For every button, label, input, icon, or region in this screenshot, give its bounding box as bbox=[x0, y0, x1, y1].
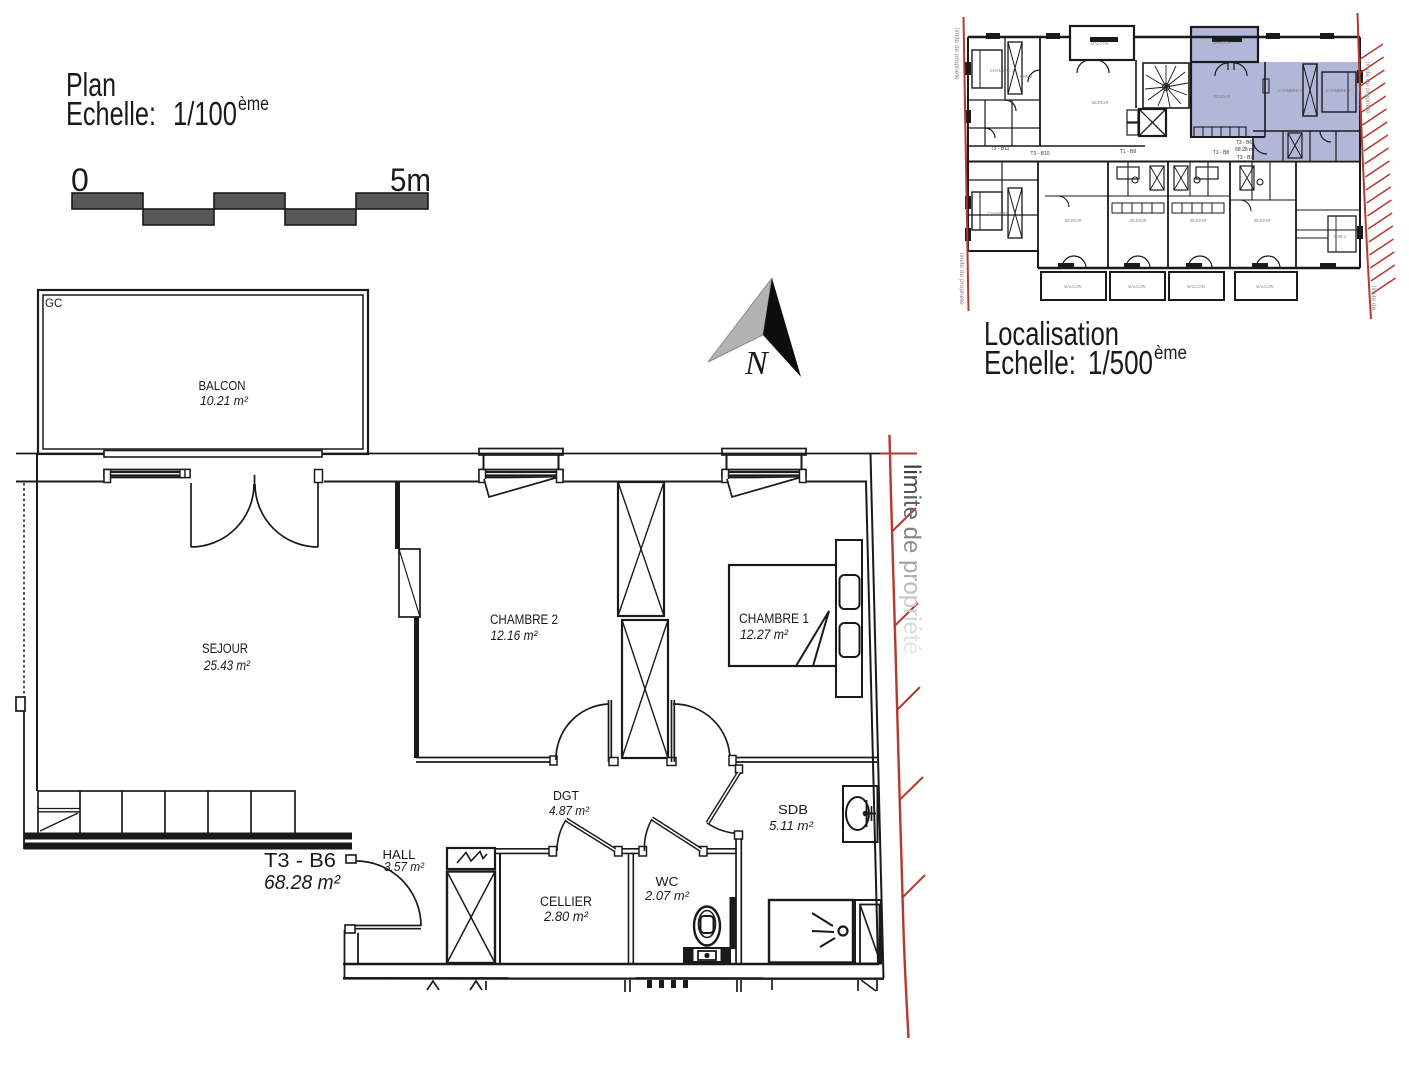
svg-text:ème: ème bbox=[238, 94, 269, 115]
svg-text:5m: 5m bbox=[390, 162, 431, 198]
svg-text:SEJOUR: SEJOUR bbox=[1130, 218, 1147, 223]
svg-text:limite de: limite de bbox=[1370, 286, 1377, 311]
svg-text:T3 - B11: T3 - B11 bbox=[991, 146, 1010, 152]
svg-text:68.28 m²: 68.28 m² bbox=[264, 872, 341, 894]
svg-text:CHB 1: CHB 1 bbox=[1334, 234, 1347, 239]
svg-text:12.16 m²: 12.16 m² bbox=[491, 628, 538, 643]
svg-text:3.57 m²: 3.57 m² bbox=[384, 859, 425, 874]
svg-text:limite de propriété: limite de propriété bbox=[898, 464, 925, 655]
svg-text:SEJOUR: SEJOUR bbox=[202, 641, 248, 656]
svg-text:T1 - B8: T1 - B8 bbox=[1213, 150, 1230, 156]
svg-text:T1 - B9: T1 - B9 bbox=[1120, 149, 1137, 155]
svg-text:CHAMBRE: CHAMBRE bbox=[988, 211, 1009, 216]
svg-text:BALCON: BALCON bbox=[199, 379, 246, 393]
svg-text:ème: ème bbox=[1154, 343, 1187, 364]
svg-text:N: N bbox=[744, 345, 770, 382]
svg-text:T3 - B6: T3 - B6 bbox=[264, 850, 336, 872]
svg-text:4.87 m²: 4.87 m² bbox=[549, 803, 590, 818]
svg-text:BALCON: BALCON bbox=[1091, 41, 1108, 46]
svg-text:CHAMBRE 1: CHAMBRE 1 bbox=[990, 68, 1015, 73]
svg-text:BALCON: BALCON bbox=[1064, 284, 1081, 289]
svg-text:WC: WC bbox=[656, 874, 679, 889]
svg-text:DGT: DGT bbox=[553, 788, 579, 803]
svg-text:SEJOUR: SEJOUR bbox=[1254, 218, 1271, 223]
svg-text:BALCON: BALCON bbox=[1187, 284, 1204, 289]
svg-text:CELLIER: CELLIER bbox=[540, 894, 592, 909]
svg-text:10.21 m²: 10.21 m² bbox=[200, 394, 249, 408]
svg-text:GC: GC bbox=[45, 298, 62, 310]
svg-text:limite de propriété: limite de propriété bbox=[953, 28, 960, 80]
svg-text:SEJOUR: SEJOUR bbox=[1092, 100, 1109, 105]
svg-text:2.07 m²: 2.07 m² bbox=[644, 888, 690, 903]
svg-text:limite de propriété: limite de propriété bbox=[1364, 62, 1371, 114]
svg-text:5.11 m²: 5.11 m² bbox=[769, 818, 814, 833]
svg-text:CHAMBRE 1: CHAMBRE 1 bbox=[1326, 88, 1351, 93]
svg-text:68.28 m²: 68.28 m² bbox=[1235, 147, 1255, 153]
svg-text:2.80 m²: 2.80 m² bbox=[543, 909, 588, 924]
svg-text:BALCON: BALCON bbox=[1128, 284, 1145, 289]
svg-text:SEJOUR: SEJOUR bbox=[1065, 218, 1082, 223]
svg-text:0: 0 bbox=[71, 162, 89, 198]
svg-text:CHAMBRE 2: CHAMBRE 2 bbox=[1278, 88, 1303, 93]
svg-text:1/500: 1/500 bbox=[1088, 344, 1153, 381]
svg-text:12.27 m²: 12.27 m² bbox=[740, 627, 788, 642]
svg-text:CHAMBRE 2: CHAMBRE 2 bbox=[490, 612, 558, 627]
svg-text:T3 - B6: T3 - B6 bbox=[1236, 140, 1253, 146]
svg-text:SEJOUR: SEJOUR bbox=[1214, 94, 1231, 99]
svg-text:Echelle:: Echelle: bbox=[984, 344, 1076, 381]
svg-text:25.43 m²: 25.43 m² bbox=[203, 658, 250, 673]
svg-text:T3 - B10: T3 - B10 bbox=[1030, 151, 1049, 157]
svg-text:T3 - B7: T3 - B7 bbox=[1237, 155, 1254, 161]
svg-text:Echelle:: Echelle: bbox=[66, 95, 156, 132]
svg-text:SEJOUR: SEJOUR bbox=[1190, 218, 1207, 223]
svg-text:BALCON: BALCON bbox=[1213, 40, 1230, 45]
svg-text:limite de propriété: limite de propriété bbox=[958, 253, 965, 305]
svg-text:BALCON: BALCON bbox=[1256, 284, 1273, 289]
svg-text:CHAMBRE 1: CHAMBRE 1 bbox=[739, 611, 809, 626]
svg-text:1/100: 1/100 bbox=[173, 95, 237, 132]
svg-text:CHB 2: CHB 2 bbox=[1020, 74, 1033, 79]
svg-text:SDB: SDB bbox=[778, 802, 808, 817]
